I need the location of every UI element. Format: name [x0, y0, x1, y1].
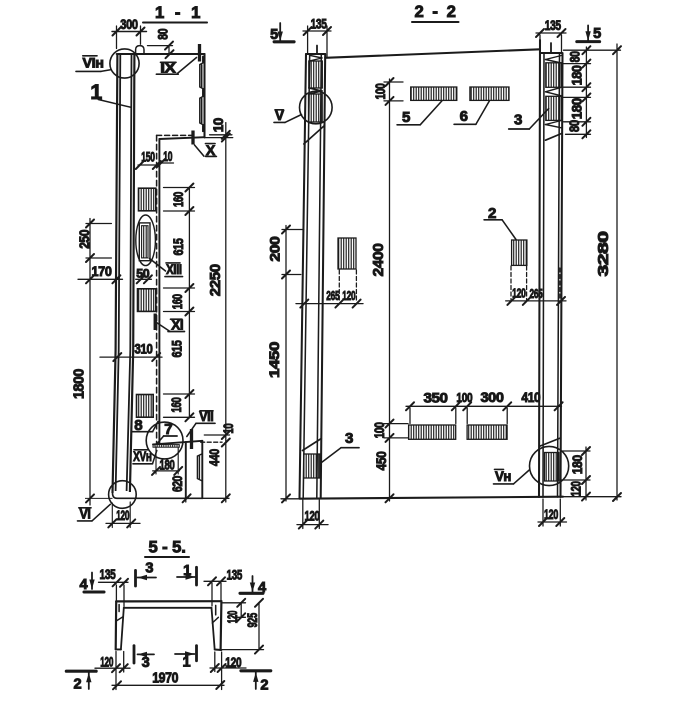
svg-text:615: 615	[170, 238, 186, 255]
svg-text:265: 265	[326, 288, 339, 303]
svg-text:1: 1	[183, 655, 191, 671]
svg-text:160: 160	[171, 192, 186, 207]
svg-text:80: 80	[568, 51, 583, 62]
svg-text:200: 200	[267, 236, 283, 262]
svg-text:160: 160	[170, 294, 185, 309]
svg-text:350: 350	[424, 389, 449, 405]
svg-text:VI: VI	[80, 506, 91, 521]
svg-text:Vн: Vн	[495, 469, 511, 484]
svg-text:VIн: VIн	[83, 56, 104, 71]
svg-text:3: 3	[145, 561, 153, 577]
svg-text:1800: 1800	[72, 369, 88, 399]
svg-text:180: 180	[570, 65, 585, 85]
svg-text:620: 620	[170, 476, 185, 492]
svg-text:2400: 2400	[370, 244, 387, 277]
svg-text:XVн: XVн	[133, 449, 152, 464]
svg-text:80: 80	[155, 28, 171, 39]
svg-text:6: 6	[460, 108, 468, 125]
svg-text:5: 5	[402, 109, 410, 126]
svg-text:3: 3	[514, 112, 522, 129]
svg-text:IX: IX	[160, 59, 176, 75]
svg-text:160: 160	[169, 398, 184, 413]
svg-text:5: 5	[593, 26, 601, 42]
svg-text:2: 2	[73, 677, 81, 693]
svg-text:120: 120	[305, 509, 320, 524]
svg-text:100: 100	[373, 84, 388, 100]
svg-text:170: 170	[92, 264, 112, 279]
svg-text:135: 135	[100, 566, 116, 582]
svg-text:180: 180	[160, 457, 175, 472]
svg-text:V: V	[275, 108, 284, 123]
svg-text:10: 10	[221, 424, 236, 434]
svg-text:120: 120	[544, 507, 558, 522]
svg-text:180: 180	[570, 455, 585, 474]
svg-text:250: 250	[76, 229, 92, 249]
svg-text:2250: 2250	[207, 264, 224, 296]
svg-text:440: 440	[206, 449, 222, 466]
svg-text:3280: 3280	[595, 232, 612, 277]
svg-text:2 - 2: 2 - 2	[415, 2, 456, 21]
svg-text:300: 300	[481, 389, 505, 405]
svg-text:XIII: XIII	[166, 262, 182, 277]
svg-text:100: 100	[456, 390, 472, 405]
svg-text:10: 10	[211, 118, 226, 132]
svg-text:135: 135	[545, 17, 561, 33]
svg-text:100: 100	[372, 422, 387, 438]
svg-text:3: 3	[142, 655, 150, 671]
svg-text:615: 615	[169, 340, 185, 357]
svg-text:10: 10	[163, 149, 172, 164]
svg-text:120: 120	[568, 481, 583, 496]
svg-text:925: 925	[244, 613, 260, 628]
svg-text:X: X	[206, 142, 216, 158]
svg-text:XI: XI	[171, 316, 183, 332]
svg-text:450: 450	[373, 451, 389, 471]
svg-text:310: 310	[135, 341, 153, 357]
svg-text:120: 120	[512, 286, 526, 301]
svg-text:410: 410	[521, 389, 541, 405]
svg-text:120: 120	[342, 288, 355, 303]
svg-text:50: 50	[136, 266, 149, 280]
svg-text:135: 135	[227, 567, 243, 583]
svg-text:180: 180	[570, 98, 585, 119]
svg-text:80: 80	[567, 120, 582, 132]
svg-text:1450: 1450	[266, 341, 282, 378]
svg-text:120: 120	[116, 508, 129, 523]
svg-text:5 - 5.: 5 - 5.	[149, 538, 186, 557]
svg-text:VII: VII	[199, 409, 213, 424]
svg-text:300: 300	[120, 16, 138, 32]
svg-text:150: 150	[141, 150, 155, 165]
svg-text:1 - 1: 1 - 1	[155, 3, 200, 22]
svg-text:135: 135	[311, 16, 327, 32]
svg-text:3: 3	[345, 430, 353, 447]
svg-text:120: 120	[100, 655, 113, 670]
svg-text:1970: 1970	[152, 671, 178, 687]
svg-text:265: 265	[530, 286, 543, 301]
svg-text:120: 120	[225, 611, 240, 624]
svg-text:2: 2	[260, 678, 268, 694]
